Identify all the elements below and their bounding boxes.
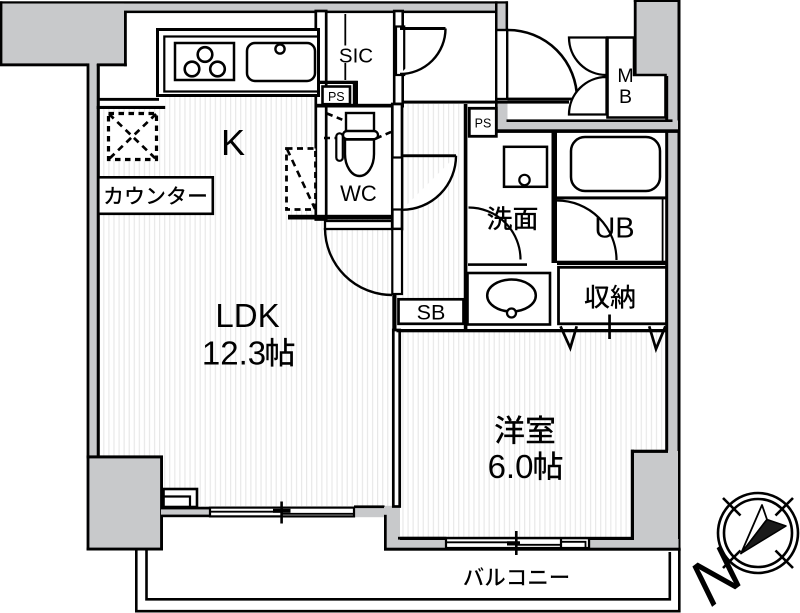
svg-text:M: M bbox=[617, 65, 633, 87]
svg-text:B: B bbox=[619, 86, 632, 108]
svg-text:UB: UB bbox=[594, 213, 634, 245]
svg-text:LDK: LDK bbox=[215, 297, 279, 334]
svg-text:SB: SB bbox=[417, 301, 446, 325]
svg-text:K: K bbox=[221, 122, 245, 163]
svg-text:6.0: 6.0 bbox=[488, 448, 534, 485]
svg-text:PS: PS bbox=[328, 90, 345, 104]
svg-text:PS: PS bbox=[475, 117, 492, 131]
svg-text:WC: WC bbox=[340, 181, 377, 206]
svg-text:12.3: 12.3 bbox=[202, 335, 266, 372]
svg-text:SIC: SIC bbox=[339, 45, 373, 68]
